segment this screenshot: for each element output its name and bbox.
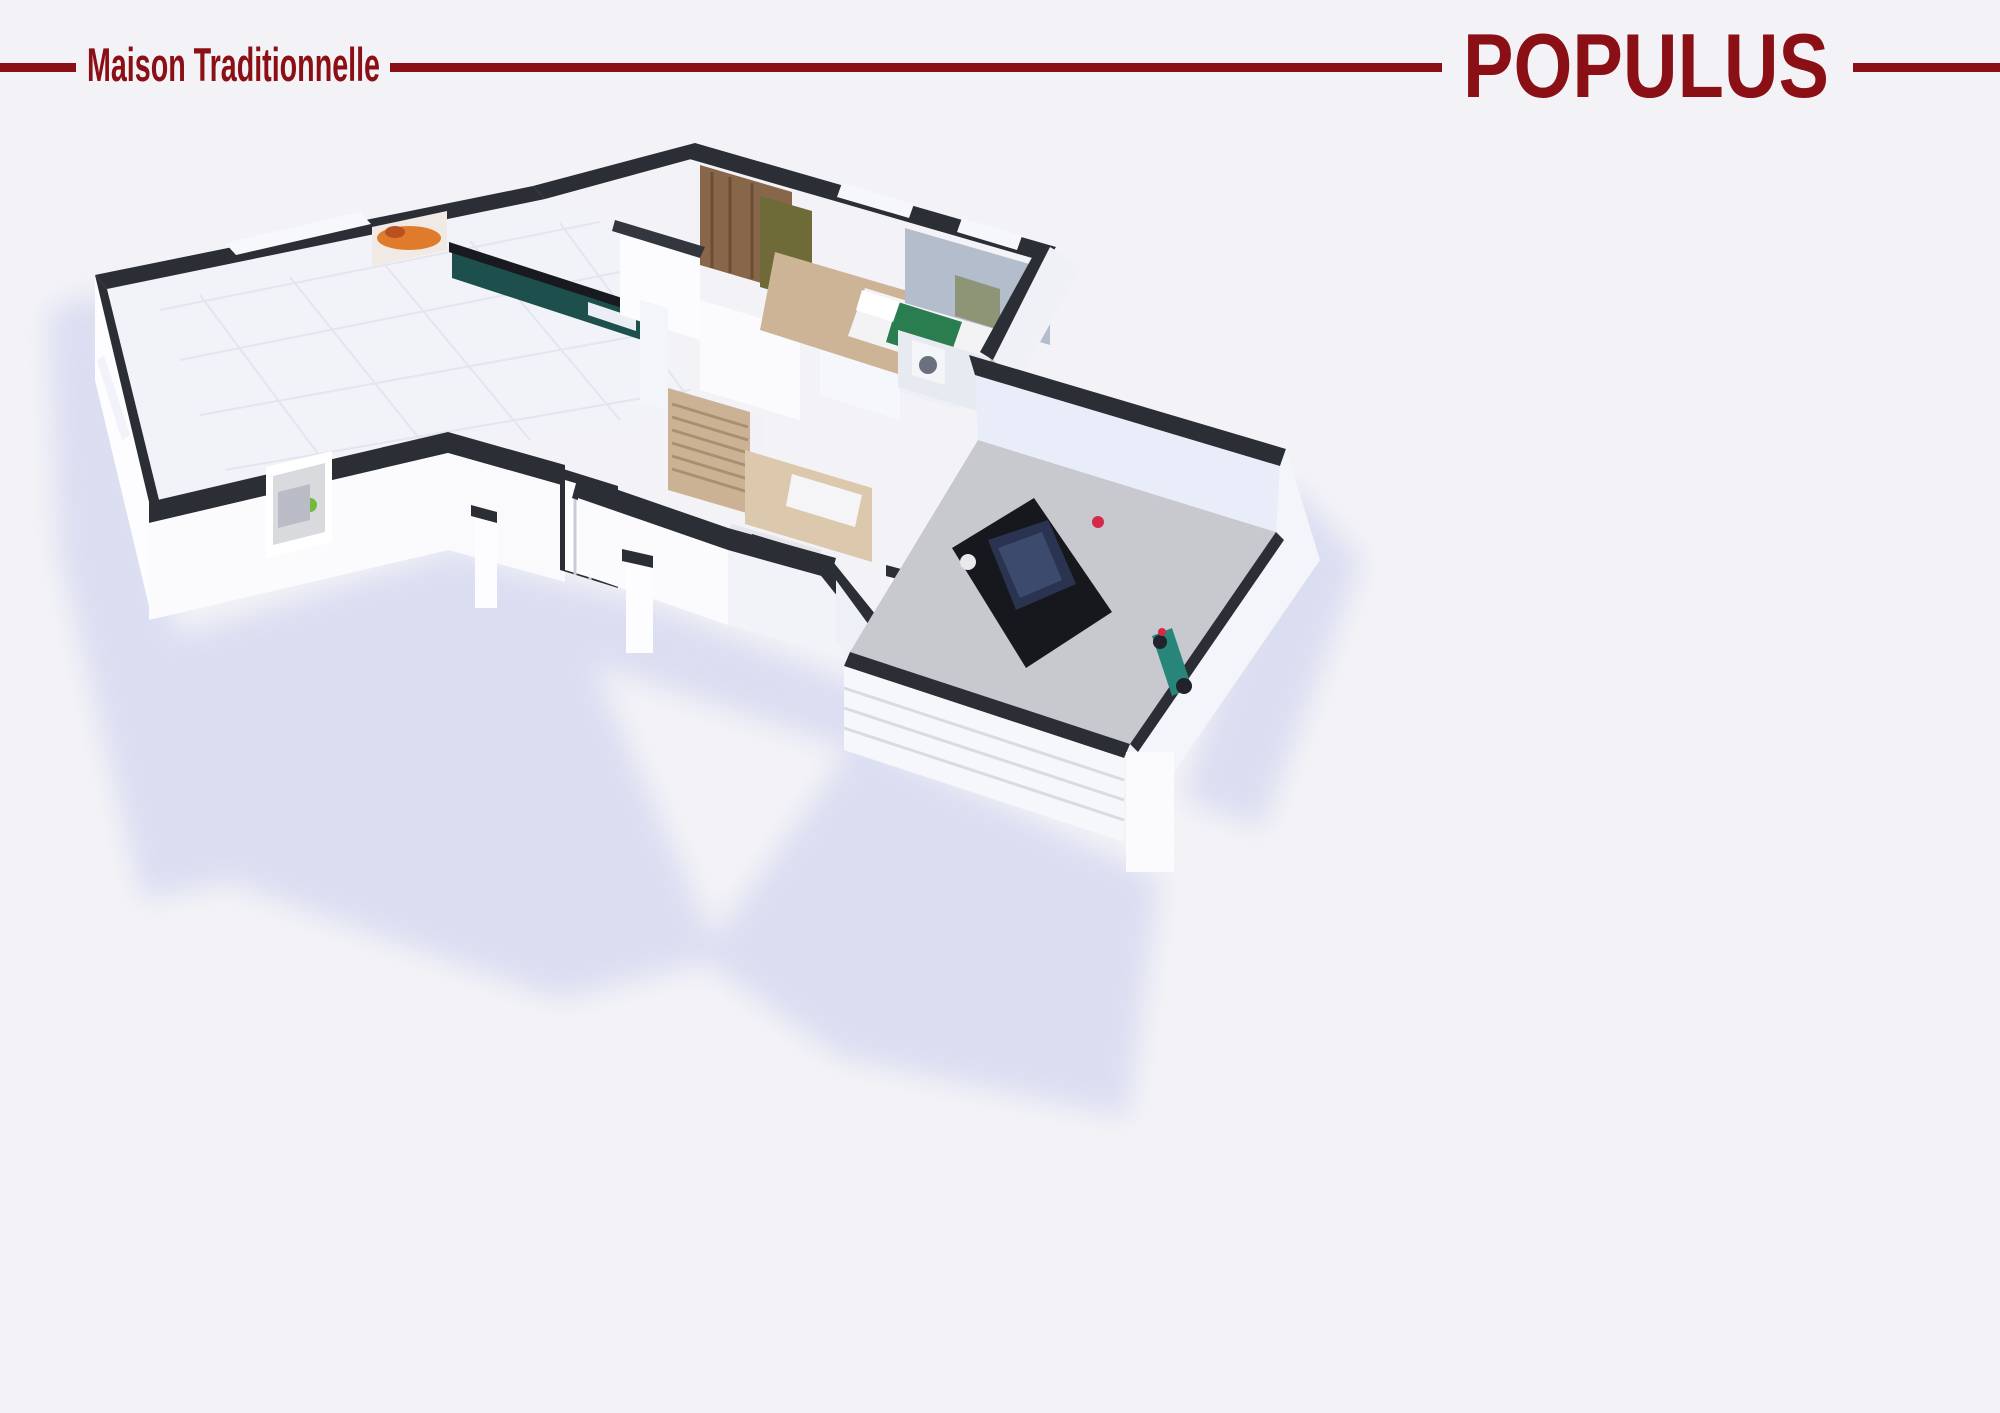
- svg-text:Maison Traditionnelle: Maison Traditionnelle: [87, 38, 380, 91]
- svg-text:POPULUS: POPULUS: [1463, 16, 1829, 117]
